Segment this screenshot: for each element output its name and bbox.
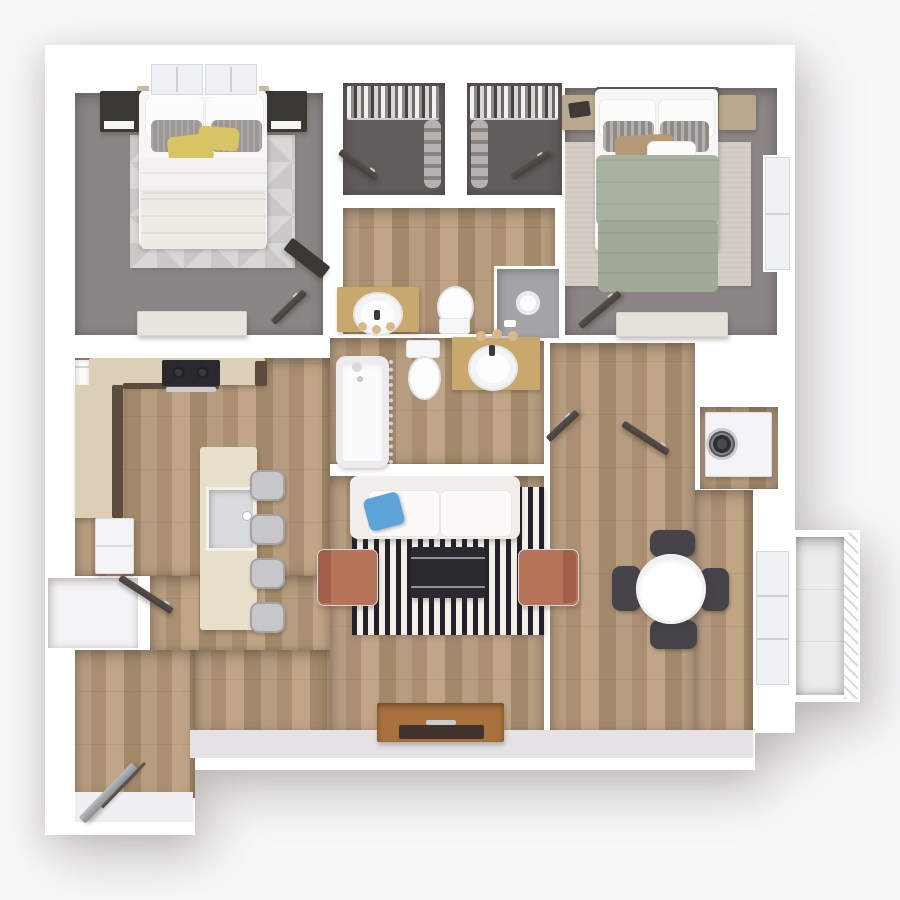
bath1-faucet: [374, 310, 380, 320]
bedroom2-nightstand-right: [719, 95, 756, 130]
coffee-table: [411, 547, 485, 598]
bedroom1-window: [149, 62, 205, 97]
bath1-showerhead: [516, 291, 540, 315]
cooktop-burner: [172, 366, 185, 379]
bath1-toilet-tank: [439, 318, 470, 334]
oven-handle: [166, 387, 216, 392]
bed2-duvet-folded: [598, 220, 718, 292]
bath2-toilet-bowl: [408, 356, 441, 400]
nightstand-paper: [271, 121, 301, 129]
kitchen-counter-end-dark: [255, 361, 267, 386]
bed1-folded-blanket: [141, 192, 266, 249]
bath2-sconce-bulb: [492, 329, 502, 339]
bath1-sconce-bulb: [386, 322, 395, 331]
bar-stool: [250, 558, 285, 589]
closet1-shelf-bins: [424, 120, 441, 188]
bar-stool: [250, 470, 285, 501]
bath1-sconce-bulb: [372, 325, 381, 334]
media-console-handle: [426, 720, 456, 725]
bedroom2-dresser: [616, 312, 728, 337]
armchair-left-back: [318, 550, 331, 603]
kitchen-cabinet-face-left: [112, 385, 123, 518]
bar-stool: [250, 602, 285, 633]
bath2-sconce-bulb: [508, 331, 518, 341]
bath2-faucet: [489, 345, 495, 356]
bed2-duvet-upper: [596, 155, 719, 225]
bar-stool: [250, 514, 285, 545]
bath2-curtain-beads: [389, 360, 393, 464]
bedroom1-window: [203, 62, 259, 97]
bath1-sconce-bulb: [358, 322, 367, 331]
bedroom1-dresser: [137, 311, 247, 336]
refrigerator: [95, 518, 134, 574]
closet1-hanging-clothes: [347, 86, 439, 120]
balcony-railing: [844, 533, 858, 699]
cooktop-burner: [196, 366, 209, 379]
nightstand-paper: [104, 121, 134, 129]
bath1-shower-handle: [504, 320, 516, 327]
bath2-bathtub: [336, 356, 389, 468]
bed1-pillow-yellow: [197, 125, 240, 151]
balcony-floor: [796, 537, 844, 695]
washer-door: [706, 428, 738, 460]
floor-plan-canvas: [0, 0, 900, 900]
closet2-shelf-bins: [471, 120, 488, 188]
entry-floor: [75, 650, 195, 798]
bath2-tub-faucet: [352, 362, 362, 372]
kitchen-cooktop: [162, 360, 220, 386]
bath2-sconce-bulb: [476, 331, 486, 341]
bedroom2-window: [763, 155, 792, 272]
living-floor-left: [195, 650, 330, 733]
dining-floor-right: [695, 490, 753, 733]
dining-table: [636, 554, 706, 624]
sofa-cushion: [440, 490, 512, 537]
dining-chair-bottom: [650, 620, 697, 649]
dining-chair-top: [650, 530, 695, 557]
media-console-tray: [399, 725, 484, 739]
pantry-closet: [48, 578, 138, 648]
bath2-tub-drain: [357, 376, 363, 382]
closet2-hanging-clothes: [470, 86, 558, 120]
armchair-right-back: [563, 550, 576, 603]
patio-sliding-door: [754, 549, 791, 687]
nightstand-book: [568, 101, 591, 119]
